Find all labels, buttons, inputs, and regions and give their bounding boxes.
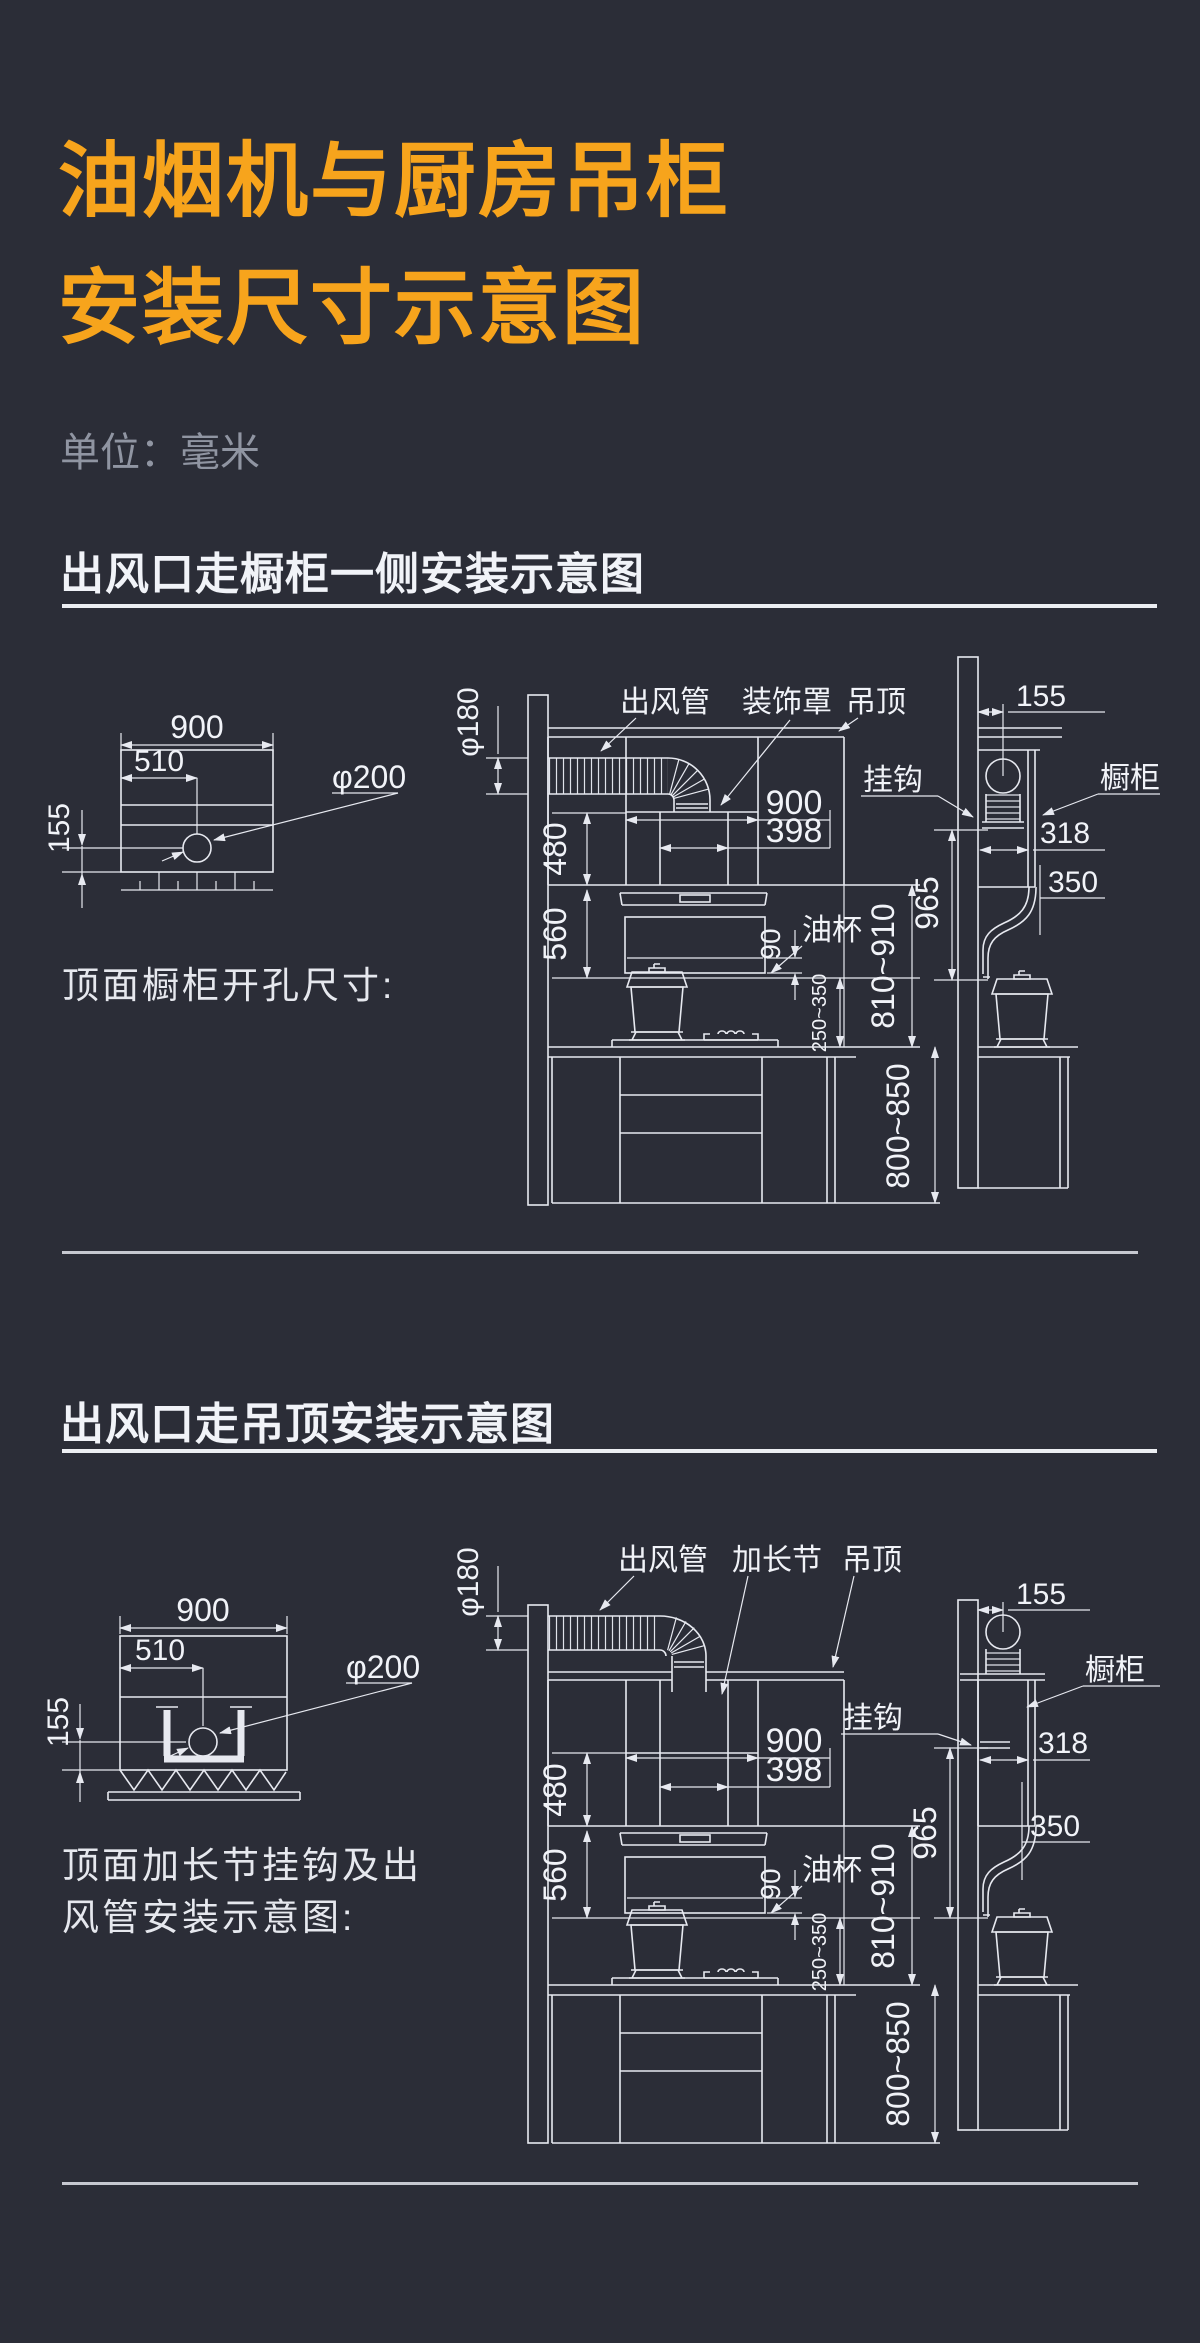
unit-label: 单位：毫米 [60, 420, 260, 478]
dim-opening-front-offset: 155 [42, 1697, 75, 1747]
dim-oil-cup-height: 90 [755, 1868, 786, 1899]
label-cabinet: 橱柜 [1085, 1654, 1145, 1687]
dim-opening-width: 900 [170, 709, 223, 745]
section1-heading-rule [62, 604, 1157, 608]
dim-hood-height: 560 [537, 1848, 573, 1901]
s2-main-elevation: φ180 出风管 加长节 吊顶 900 398 480 560 [452, 1544, 988, 2143]
section2-drawing: 900 510 155 φ200 [0, 1470, 1200, 2160]
s1-main-elevation: φ180 出风管 装饰罩 吊顶 900 398 480 560 [452, 686, 988, 1205]
bottom-divider [62, 2182, 1138, 2185]
dim-cabinet-opening-depth: 318 [1038, 1727, 1088, 1760]
dim-cover-height: 480 [537, 1763, 573, 1816]
dim-oil-cup-height: 90 [755, 928, 786, 959]
label-cabinet: 橱柜 [1100, 762, 1160, 795]
dim-hood-to-counter: 810~910 [865, 1843, 901, 1968]
s1-side-view: 155 橱柜 318 350 [958, 657, 1160, 1188]
label-duct: 出风管 [620, 686, 710, 719]
dim-hood-clearance: 250~350 [809, 1913, 831, 1991]
label-hook: 挂钩 [843, 1702, 903, 1735]
dim-cabinet-depth: 350 [1048, 866, 1098, 899]
dim-hook-height: 965 [907, 1806, 943, 1859]
dim-opening-dia: φ200 [332, 759, 406, 795]
s1-opening-top-view: 900 510 155 φ200 [43, 709, 406, 908]
s2-opening-top-view: 900 510 155 φ200 [42, 1592, 420, 1802]
section-divider [62, 1251, 1138, 1254]
page-title-line2: 安装尺寸示意图 [58, 263, 646, 354]
label-decor-cover: 装饰罩 [742, 686, 832, 719]
dim-opening-center-offset: 510 [135, 1634, 185, 1667]
s2-side-view: 155 橱柜 318 350 [958, 1578, 1160, 2130]
dim-opening-center-offset: 510 [134, 745, 184, 778]
label-oil-cup: 油杯 [802, 1854, 862, 1887]
dim-opening-width: 900 [176, 1592, 229, 1628]
label-ceiling: 吊顶 [846, 686, 906, 719]
dim-wall-offset: 155 [1016, 680, 1066, 713]
label-ceiling: 吊顶 [842, 1544, 902, 1577]
section1-heading: 出风口走橱柜一侧安装示意图 [60, 538, 645, 602]
dim-wall-offset: 155 [1016, 1578, 1066, 1611]
dim-cover-width: 398 [766, 1751, 823, 1789]
section1-drawing: 900 510 155 φ200 φ18 [0, 620, 1200, 1250]
label-hook: 挂钩 [863, 764, 923, 797]
dim-hook-height: 965 [909, 876, 945, 929]
dim-duct-dia: φ180 [452, 1547, 485, 1617]
dim-opening-front-offset: 155 [43, 803, 76, 853]
section2-heading: 出风口走吊顶安装示意图 [60, 1388, 555, 1452]
section2-heading-rule [62, 1449, 1157, 1453]
dim-counter-height: 800~850 [880, 1063, 916, 1188]
page-title-line1: 油烟机与厨房吊柜 [58, 136, 730, 227]
label-oil-cup: 油杯 [802, 914, 862, 947]
dim-counter-height: 800~850 [880, 2001, 916, 2126]
dim-hood-height: 560 [537, 907, 573, 960]
dim-cover-width: 398 [766, 812, 823, 850]
dim-cabinet-depth: 350 [1030, 1810, 1080, 1843]
dim-opening-dia: φ200 [346, 1649, 420, 1685]
dim-hood-to-counter: 810~910 [865, 903, 901, 1028]
dim-hood-clearance: 250~350 [809, 974, 831, 1052]
dim-cabinet-opening-depth: 318 [1040, 817, 1090, 850]
page-title: 油烟机与厨房吊柜安装尺寸示意图 [58, 118, 730, 372]
label-extension: 加长节 [732, 1544, 822, 1577]
dim-cover-height: 480 [537, 822, 573, 875]
label-duct: 出风管 [618, 1544, 708, 1577]
dim-duct-dia: φ180 [452, 687, 485, 757]
page: 油烟机与厨房吊柜安装尺寸示意图 单位：毫米 出风口走橱柜一侧安装示意图 顶面橱柜… [0, 0, 1200, 2343]
